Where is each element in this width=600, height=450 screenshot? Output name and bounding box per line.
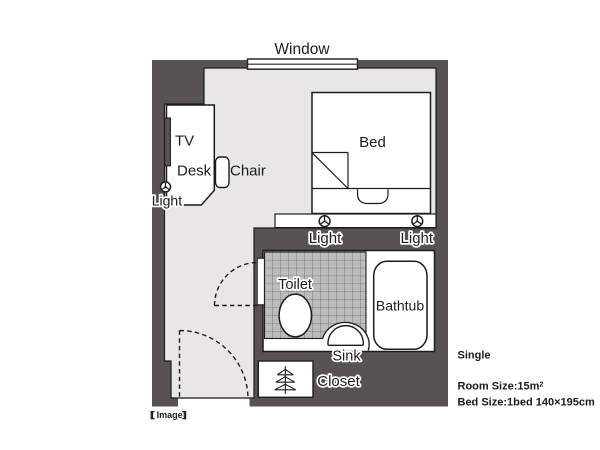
svg-text:Light: Light: [309, 230, 342, 247]
svg-text:TV: TV: [175, 132, 194, 149]
svg-text:Image: Image: [157, 410, 183, 420]
svg-text:Closet: Closet: [317, 373, 360, 390]
svg-text:Sink: Sink: [332, 349, 361, 365]
svg-text:Bathtub: Bathtub: [376, 298, 424, 314]
svg-text:Desk: Desk: [177, 163, 212, 180]
svg-text:Single: Single: [458, 350, 491, 362]
svg-text:Toilet: Toilet: [278, 277, 312, 293]
svg-text:Chair: Chair: [230, 163, 266, 180]
svg-text:Light: Light: [152, 192, 182, 208]
svg-text:Bed Size:1bed 140×195cm: Bed Size:1bed 140×195cm: [458, 396, 595, 408]
svg-text:Light: Light: [401, 230, 434, 247]
svg-text:Bed: Bed: [359, 134, 386, 151]
svg-text:Window: Window: [274, 41, 330, 58]
svg-text:Room Size:15m2: Room Size:15m2: [458, 381, 544, 393]
